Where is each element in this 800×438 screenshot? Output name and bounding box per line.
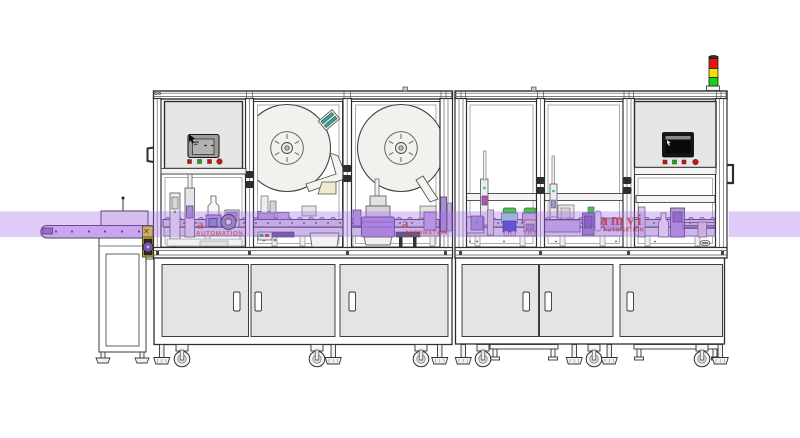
svg-text:a: a	[402, 216, 409, 231]
svg-text:AUTOMATION: AUTOMATION	[405, 231, 448, 237]
svg-text:AUTOMATION: AUTOMATION	[196, 231, 243, 238]
svg-text:AUTOMATION: AUTOMATION	[603, 228, 644, 234]
svg-text:a: a	[197, 217, 204, 232]
svg-text:amyi: amyi	[600, 212, 644, 229]
